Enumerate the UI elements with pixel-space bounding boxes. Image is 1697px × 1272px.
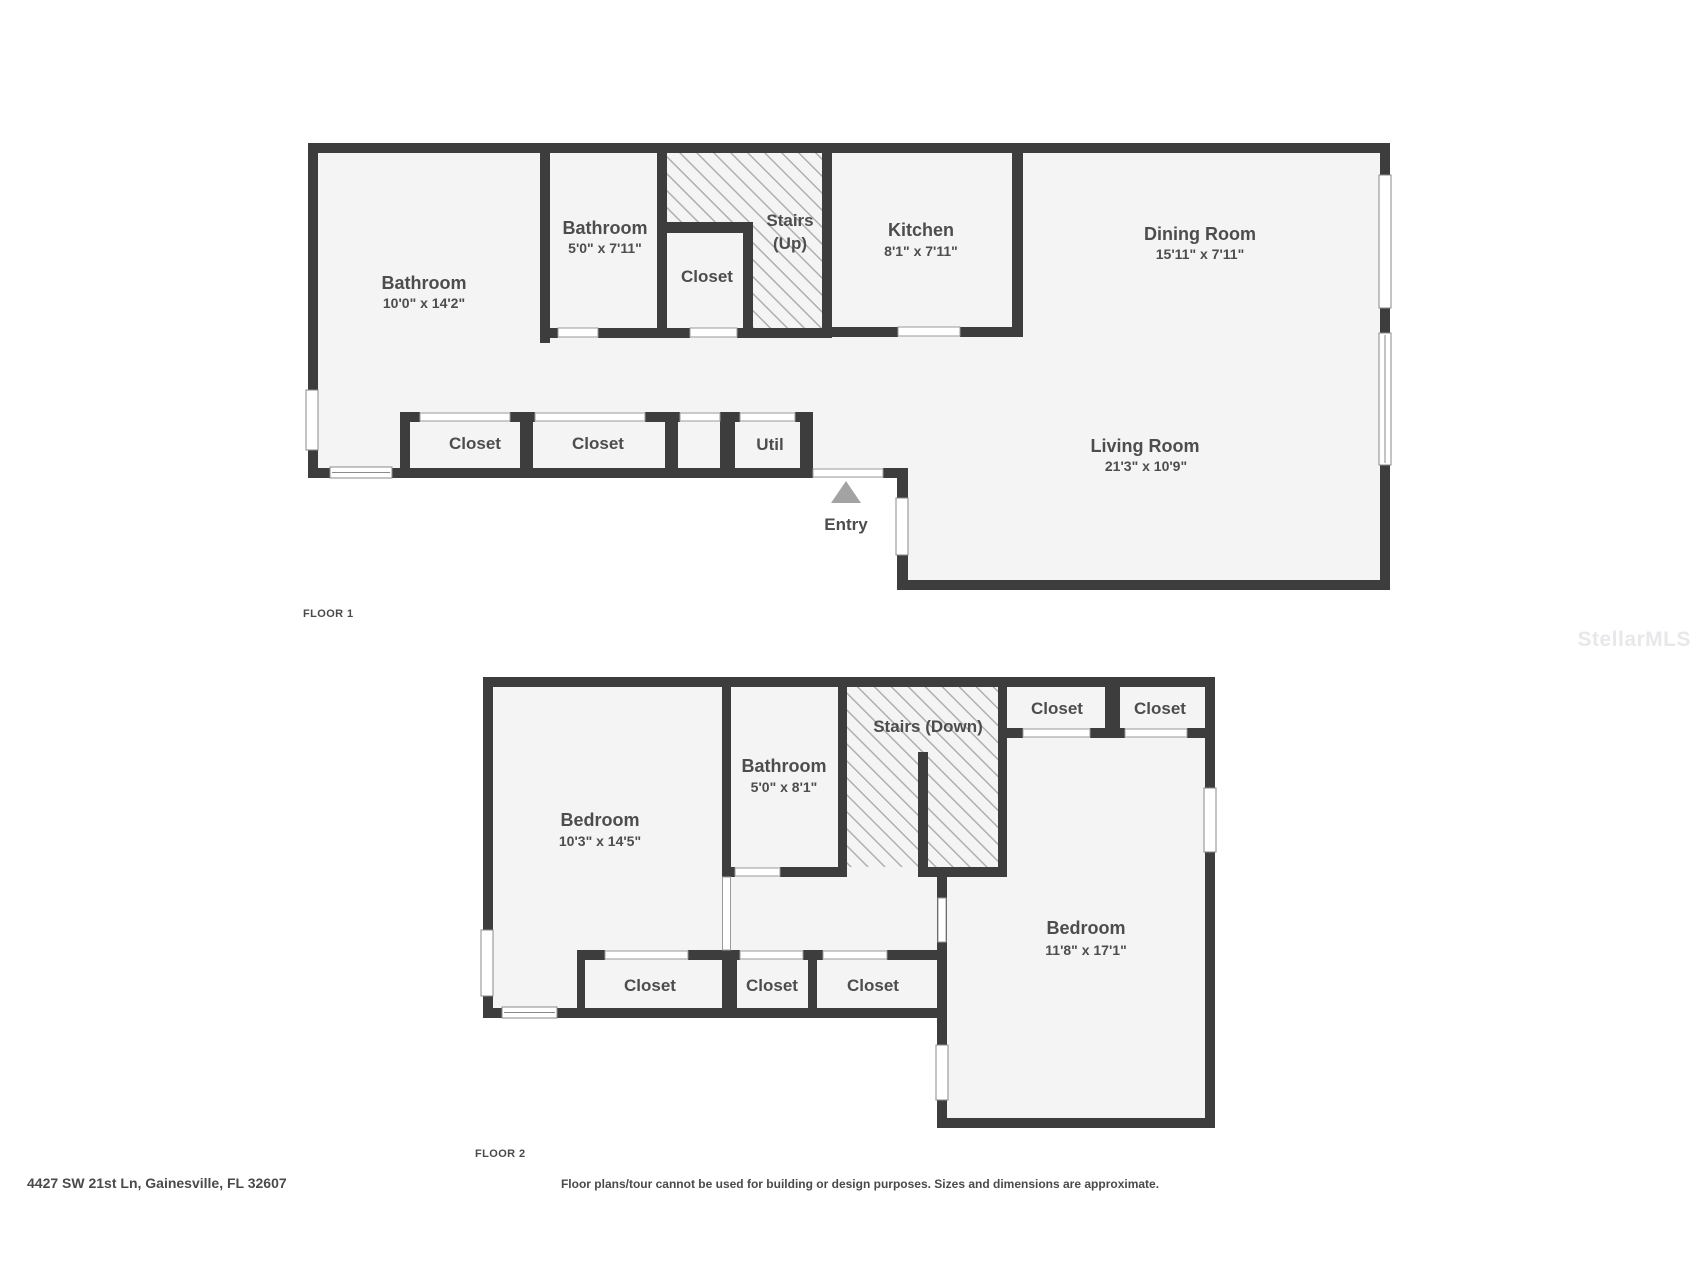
door-opening [535,413,645,421]
entry-label: Entry [824,515,868,534]
floor1-caption: FLOOR 1 [303,608,353,620]
room-dims-dining: 15'11" x 7'11" [1156,246,1244,262]
floor-plan-page: Bathroom 10'0" x 14'2" Bathroom 5'0" x 7… [0,0,1697,1272]
door-opening [723,877,731,950]
door-opening [735,868,780,876]
door-opening [680,413,720,421]
room-label-closet-bottom-2: Closet [746,976,798,995]
room-dims-bathroom-f2: 5'0" x 8'1" [751,779,818,795]
door-opening [1023,729,1090,737]
door-opening [823,951,887,959]
room-label-util: Util [756,435,783,454]
floor2-plan: Bedroom 10'3" x 14'5" Bathroom 5'0" x 8'… [481,677,1216,1128]
door-opening [420,413,510,421]
floor1-plan: Bathroom 10'0" x 14'2" Bathroom 5'0" x 7… [306,143,1391,590]
room-label-stairs-up-line2: (Up) [773,234,807,253]
window [936,1045,948,1100]
room-label-closet-top-1: Closet [1031,699,1083,718]
entry-threshold [813,469,883,477]
room-dims-bedroom-right: 11'8" x 17'1" [1045,942,1126,958]
window [481,930,493,996]
property-address: 4427 SW 21st Ln, Gainesville, FL 32607 [27,1175,287,1191]
room-label-kitchen: Kitchen [888,220,954,240]
window [1379,175,1391,308]
room-label-closet-row-2: Closet [572,434,624,453]
door-opening [898,327,960,336]
room-dims-bedroom-left: 10'3" x 14'5" [559,833,641,849]
door-opening [690,328,737,337]
window [896,498,908,555]
room-label-closet-hall: Closet [681,267,733,286]
door-opening [558,328,598,337]
door-opening [605,951,688,959]
room-dims-bathroom-main: 10'0" x 14'2" [383,295,465,311]
room-dims-kitchen: 8'1" x 7'11" [884,243,958,259]
room-label-dining: Dining Room [1144,224,1256,244]
room-label-living: Living Room [1091,436,1200,456]
floor2-caption: FLOOR 2 [475,1148,525,1160]
room-label-closet-bottom-1: Closet [624,976,676,995]
stellar-mls-watermark: StellarMLS [1577,628,1691,651]
room-dims-living: 21'3" x 10'9" [1105,458,1187,474]
room-label-bedroom-left: Bedroom [560,810,639,830]
room-label-bathroom-f2: Bathroom [742,756,827,776]
disclaimer-text: Floor plans/tour cannot be used for buil… [561,1177,1159,1191]
floor-plan-svg: Bathroom 10'0" x 14'2" Bathroom 5'0" x 7… [0,0,1697,1272]
room-label-stairs-down: Stairs (Down) [873,717,983,736]
window [1204,788,1216,852]
entry-direction-icon [831,481,861,503]
room-label-closet-row-1: Closet [449,434,501,453]
door-opening [740,413,795,421]
room-label-closet-top-2: Closet [1134,699,1186,718]
room-label-bedroom-right: Bedroom [1046,918,1125,938]
room-label-closet-bottom-3: Closet [847,976,899,995]
door-opening [938,898,946,942]
room-label-bathroom-hall: Bathroom [563,218,648,238]
door-opening [740,951,803,959]
room-dims-bathroom-hall: 5'0" x 7'11" [568,240,642,256]
door-opening [1125,729,1187,737]
room-label-bathroom-main: Bathroom [382,273,467,293]
room-label-stairs-up-line1: Stairs [766,211,813,230]
window [306,390,318,450]
